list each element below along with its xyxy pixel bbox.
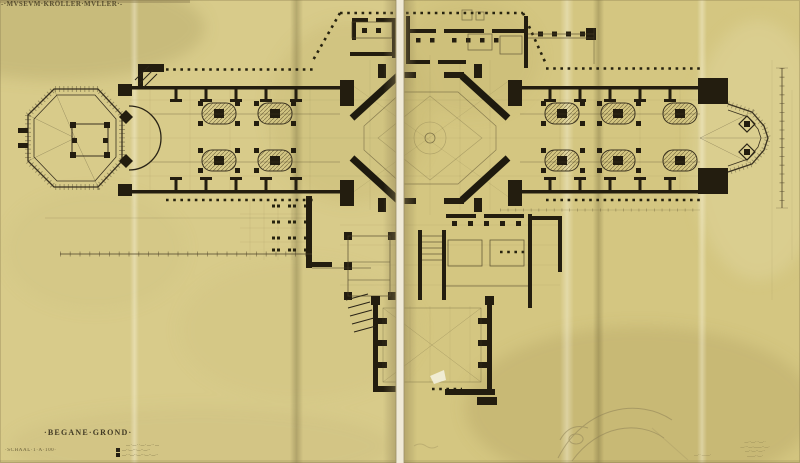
stamp-block: —··—···—·· —···—·——··—· —··—··—·· ——··—· [712, 440, 798, 458]
legend-swatch-icon [116, 448, 120, 452]
floor-plan-drawing [0, 0, 800, 463]
legend-item: —···—··—···—··—·· [116, 452, 160, 457]
scale-note: ·SCHAAL·1·A·100· [5, 448, 57, 453]
drawing-label: ·BEGANE·GROND· [44, 428, 132, 437]
legend: —·—··—·—··— —··—···—··—·· —···—··—···—··… [116, 442, 160, 457]
legend-item-label: —···—··—···—··—·· [122, 452, 158, 457]
sheet-seam [383, 0, 417, 463]
scanned-drawing: -·MVSEVM·KRÖLLER·MVLLER·- ·BEGANE·GROND·… [0, 0, 800, 463]
stamp-side-note: —·· ——· [694, 452, 711, 457]
legend-swatch-icon [116, 453, 120, 457]
stamp-line: ——··—· [712, 454, 798, 459]
title-inscription: -·MVSEVM·KRÖLLER·MVLLER·- [1, 0, 123, 8]
